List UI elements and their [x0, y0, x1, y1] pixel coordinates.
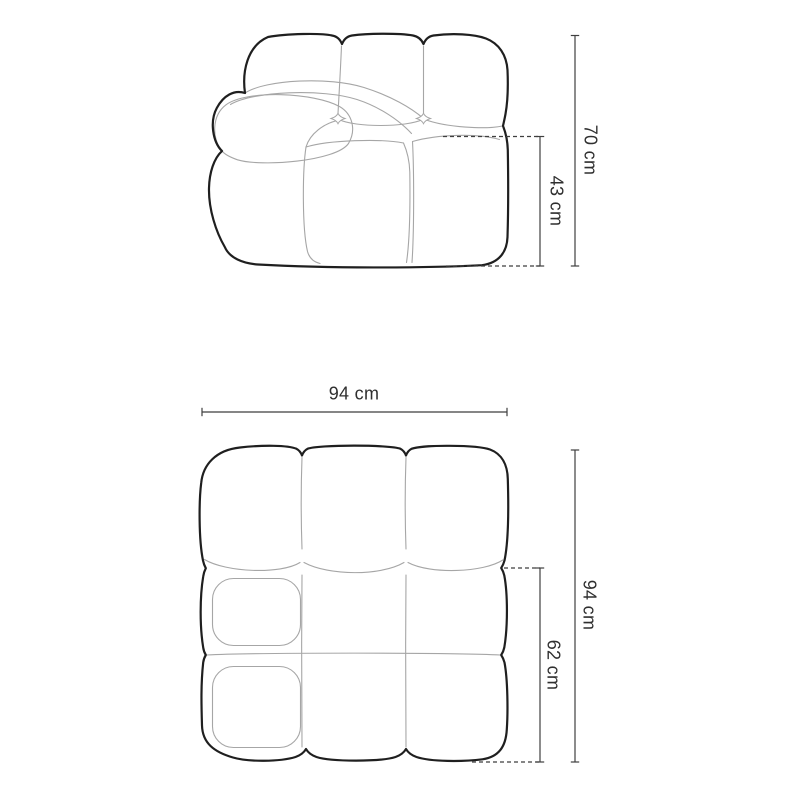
front-view-seams: [215, 46, 503, 264]
top-width-label: 94 cm: [329, 384, 380, 405]
sofa-dimension-drawing: [0, 0, 800, 800]
back-row-bottom-seam-middle: [304, 563, 404, 573]
top-width-dimension: [202, 408, 507, 416]
left-cushion-right-edge: [404, 143, 410, 263]
column-seam-left-upper: [301, 458, 302, 550]
back-seam-left: [338, 46, 342, 114]
front-height-dimension: [571, 36, 579, 267]
left-cushion-top-edge: [306, 140, 404, 147]
front-height-label: 70 cm: [580, 125, 601, 176]
right-cushion-left-edge: [412, 142, 414, 263]
top-view-seams: [205, 458, 503, 748]
seat-seam-right: [425, 120, 503, 128]
front-sofa-silhouette: [209, 34, 508, 268]
top-seat-depth-dimension: [472, 568, 544, 762]
top-sofa-silhouette: [200, 446, 509, 761]
armrest-inset-lower: [213, 667, 301, 748]
top-depth-label: 94 cm: [579, 580, 600, 631]
back-row-bottom-seam-left: [205, 560, 301, 571]
front-seat-height-label: 43 cm: [546, 176, 567, 227]
front-view-drawing: [209, 34, 579, 268]
top-seat-depth-label: 62 cm: [543, 640, 564, 691]
column-seam-right-upper: [405, 458, 406, 550]
top-view-drawing: [200, 408, 580, 762]
diagram-canvas: 70 cm 43 cm 94 cm 94 cm 62 cm: [0, 0, 800, 800]
armrest-inset-upper: [213, 579, 301, 646]
armrest-front-pill: [215, 95, 353, 163]
left-cushion-left-edge: [303, 147, 320, 264]
back-row-bottom-seam-right: [408, 560, 503, 571]
middle-row-boundary-seam: [207, 653, 501, 655]
front-seat-height-dimension: [443, 137, 544, 267]
armrest-top-seam: [245, 81, 424, 119]
